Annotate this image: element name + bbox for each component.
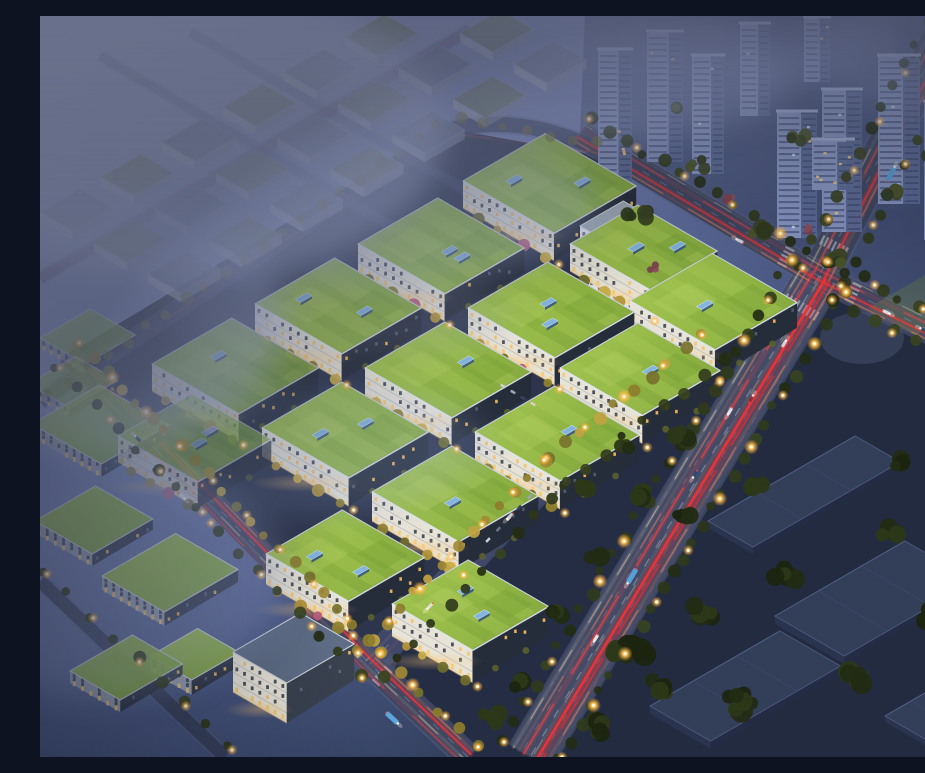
aerial-night-rendering	[40, 16, 925, 757]
corner-vignette	[40, 16, 925, 757]
city-scene-canvas	[40, 16, 925, 757]
